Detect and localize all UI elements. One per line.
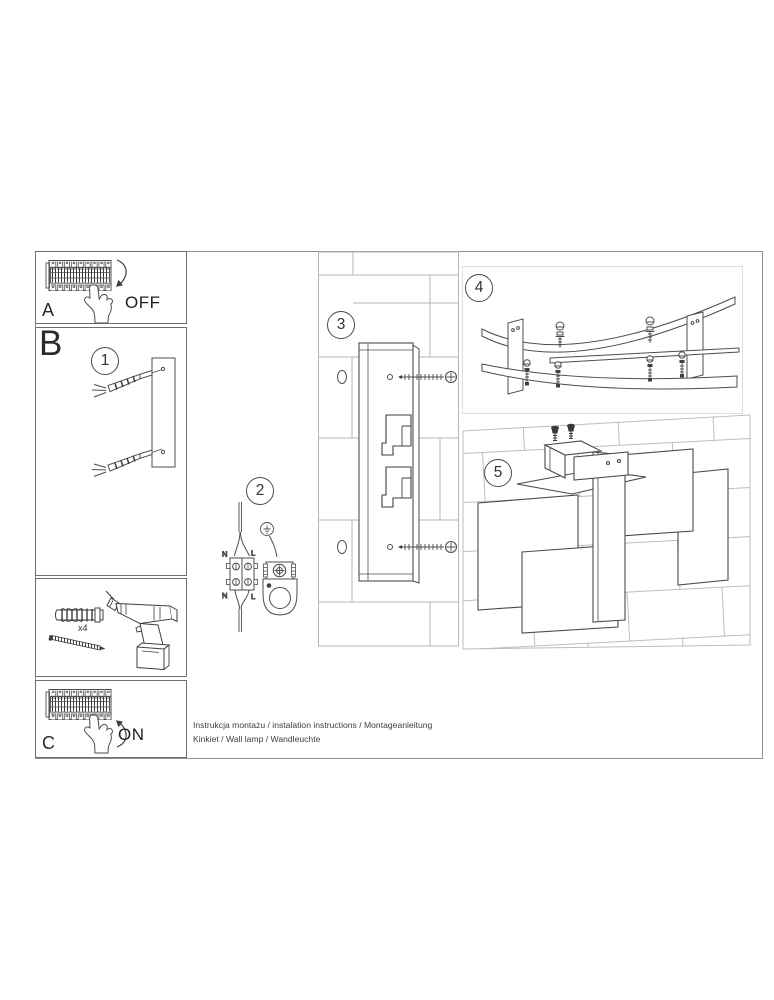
circuit-breaker-icon	[46, 261, 111, 291]
breaker-off-figure	[36, 252, 186, 323]
footer-text: Instrukcja montażu / instalation instruc…	[193, 719, 432, 746]
panel-b-label: B	[39, 324, 62, 364]
off-label: OFF	[125, 293, 161, 313]
footer-line-2: Kinkiet / Wall lamp / Wandleuchte	[193, 733, 432, 747]
ground-clamp	[263, 562, 297, 615]
tools-figure	[36, 579, 185, 676]
step-2-badge: 2	[246, 477, 274, 505]
breaker-on-figure	[36, 681, 186, 758]
earth-ground-icon	[261, 523, 274, 536]
terminal-block	[227, 558, 258, 590]
footer-line-1: Instrukcja montażu / instalation instruc…	[193, 719, 432, 733]
drill-icon	[106, 591, 177, 670]
wire-label-n-bottom: N	[222, 591, 227, 600]
panel-a-label: A	[42, 300, 54, 321]
panel-c-label: C	[42, 733, 55, 754]
step-3-badge: 3	[327, 311, 355, 339]
anchor-quantity-label: x4	[78, 623, 88, 633]
step-1-badge: 1	[91, 347, 119, 375]
step-5-badge: 5	[484, 459, 512, 487]
circuit-breaker-icon	[46, 690, 111, 720]
wire-label-l-bottom: L	[251, 592, 255, 601]
step-4-badge: 4	[465, 274, 493, 302]
end-plate-left	[508, 319, 523, 394]
wall-plug-icon	[56, 608, 104, 622]
arrow-down-icon	[116, 260, 126, 287]
wire-label-l-top: L	[251, 549, 255, 558]
hand-press-icon	[85, 715, 113, 753]
wire-label-n-top: N	[222, 550, 227, 559]
screw-icon	[49, 635, 106, 650]
end-plate-right	[687, 312, 703, 379]
step5-figure	[462, 404, 754, 652]
step4-figure	[462, 266, 743, 414]
lamp-panel-top-right	[620, 449, 693, 536]
step3-figure	[318, 250, 480, 650]
on-label: ON	[118, 725, 145, 745]
ground-lead	[270, 536, 278, 557]
